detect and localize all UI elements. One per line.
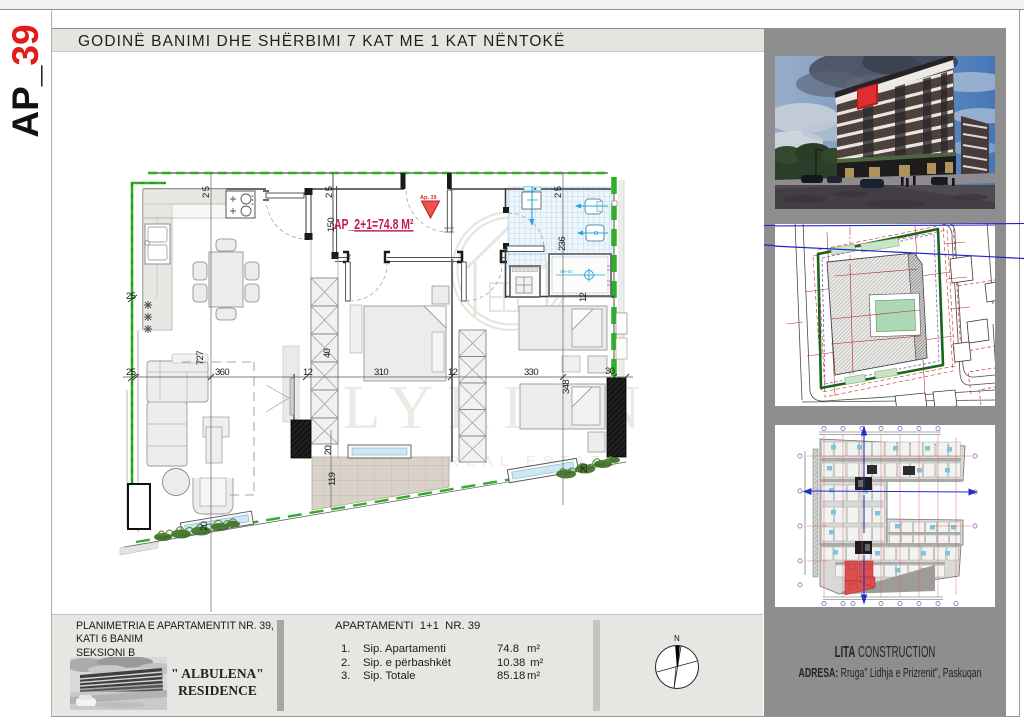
- svg-text:Ap. 39: Ap. 39: [420, 195, 437, 201]
- svg-text:236: 236: [557, 237, 568, 251]
- svg-text:25: 25: [553, 184, 564, 198]
- svg-text:25: 25: [126, 367, 136, 378]
- svg-text:40: 40: [322, 348, 333, 358]
- svg-text:727: 727: [195, 351, 206, 365]
- svg-text:AP_2+1=74.8 M²: AP_2+1=74.8 M²: [334, 216, 413, 232]
- svg-text:25: 25: [201, 184, 212, 198]
- svg-text:20: 20: [323, 445, 334, 455]
- svg-text:360: 360: [215, 367, 229, 378]
- svg-text:348: 348: [561, 380, 572, 394]
- svg-text:310: 310: [374, 367, 388, 378]
- svg-text:25: 25: [324, 184, 335, 198]
- svg-text:N: N: [674, 634, 680, 643]
- svg-text:12: 12: [303, 367, 313, 378]
- svg-text:20: 20: [579, 463, 590, 473]
- svg-text:12: 12: [578, 292, 589, 302]
- svg-text:30: 30: [605, 366, 615, 377]
- svg-text:2: 2: [347, 254, 351, 261]
- svg-text:SH-01: SH-01: [560, 269, 573, 274]
- svg-text:20: 20: [199, 521, 210, 531]
- svg-text:119: 119: [327, 472, 338, 486]
- svg-text:25: 25: [126, 291, 136, 302]
- svg-text:330: 330: [524, 367, 538, 378]
- svg-text:12: 12: [448, 367, 458, 378]
